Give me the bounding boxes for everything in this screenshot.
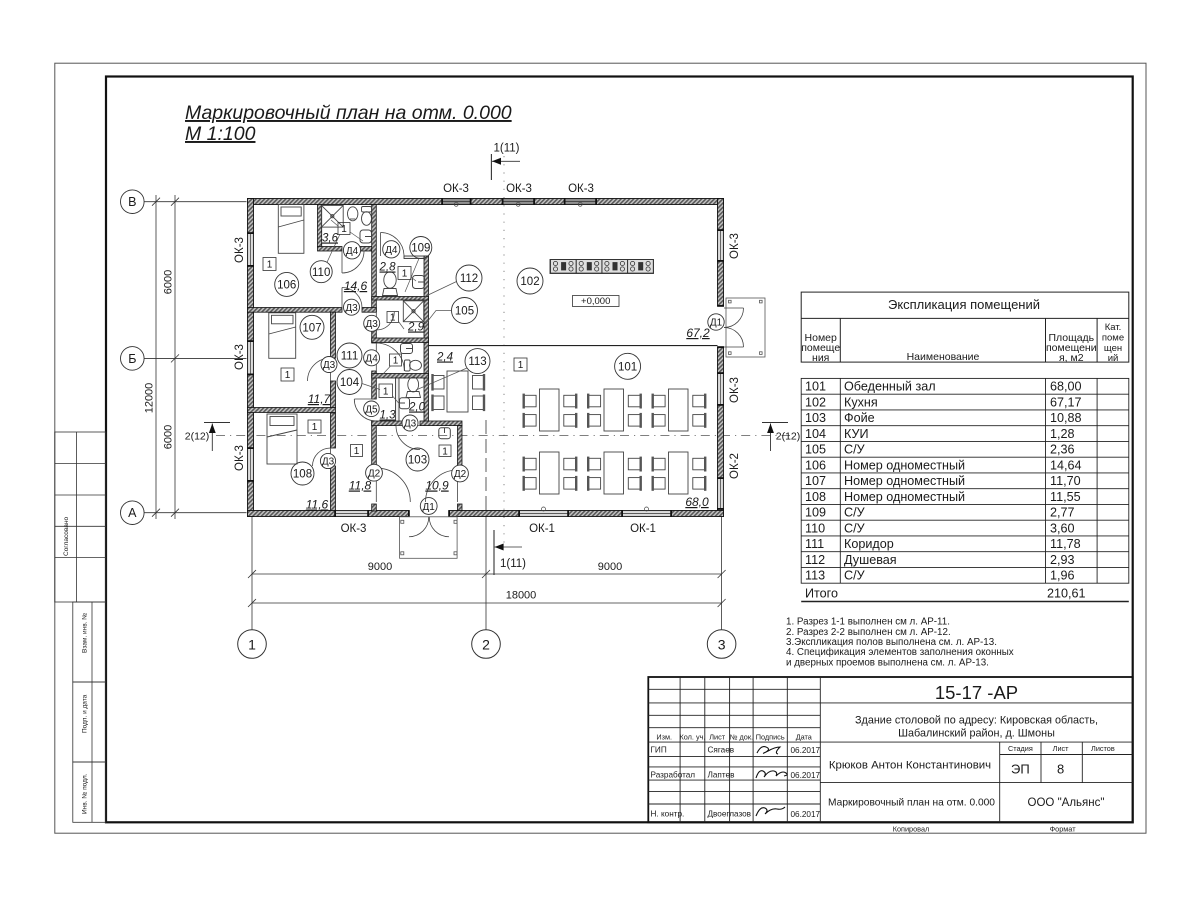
svg-text:+0,000: +0,000 bbox=[581, 296, 610, 307]
svg-text:Д2: Д2 bbox=[454, 469, 467, 480]
svg-text:ОК-3: ОК-3 bbox=[234, 237, 246, 263]
svg-text:10,9: 10,9 bbox=[425, 479, 449, 493]
svg-text:Номер одноместный: Номер одноместный bbox=[844, 458, 965, 472]
svg-text:1: 1 bbox=[383, 386, 389, 397]
svg-text:06.2017: 06.2017 bbox=[791, 810, 821, 819]
svg-text:210,61: 210,61 bbox=[1047, 587, 1086, 601]
svg-text:ООО "Альянс": ООО "Альянс" bbox=[1028, 797, 1105, 809]
svg-text:1: 1 bbox=[285, 370, 291, 381]
svg-text:105: 105 bbox=[455, 306, 474, 318]
svg-text:ОК-3: ОК-3 bbox=[729, 233, 741, 259]
svg-text:Листов: Листов bbox=[1091, 744, 1115, 753]
svg-text:67,17: 67,17 bbox=[1050, 395, 1082, 409]
svg-text:2,0: 2,0 bbox=[408, 402, 426, 414]
svg-text:110: 110 bbox=[805, 521, 825, 535]
svg-text:68,00: 68,00 bbox=[1050, 380, 1082, 394]
svg-text:15-17 -АР: 15-17 -АР bbox=[935, 682, 1018, 703]
svg-text:и дверных проемов выполнена с: и дверных проемов выполнена см. л. АР-13… bbox=[786, 657, 989, 668]
svg-text:103: 103 bbox=[408, 455, 427, 467]
svg-text:11,78: 11,78 bbox=[1050, 537, 1081, 551]
svg-text:Душевая: Душевая bbox=[844, 553, 897, 567]
svg-text:С/У: С/У bbox=[844, 521, 866, 535]
svg-text:2,36: 2,36 bbox=[1050, 443, 1075, 457]
svg-text:Н. контр.: Н. контр. bbox=[651, 810, 685, 819]
svg-text:1: 1 bbox=[390, 312, 396, 323]
svg-text:Подп. и дата: Подп. и дата bbox=[82, 694, 89, 733]
svg-text:1: 1 bbox=[354, 446, 360, 457]
svg-text:Д4: Д4 bbox=[346, 246, 359, 257]
svg-text:1: 1 bbox=[393, 356, 399, 367]
svg-text:1: 1 bbox=[248, 637, 256, 653]
svg-text:06.2017: 06.2017 bbox=[791, 746, 821, 755]
svg-text:104: 104 bbox=[805, 427, 826, 441]
svg-text:106: 106 bbox=[805, 458, 826, 472]
svg-text:109: 109 bbox=[805, 506, 826, 520]
svg-text:1(11): 1(11) bbox=[500, 558, 526, 570]
svg-text:1: 1 bbox=[442, 446, 448, 457]
svg-text:ий: ий bbox=[1108, 353, 1119, 364]
svg-text:2,9: 2,9 bbox=[407, 322, 425, 334]
svg-text:101: 101 bbox=[618, 361, 637, 373]
svg-text:108: 108 bbox=[805, 490, 826, 504]
svg-text:Согласовано: Согласовано bbox=[63, 517, 70, 556]
svg-text:112: 112 bbox=[805, 553, 825, 567]
svg-text:Наименование: Наименование bbox=[907, 351, 980, 363]
svg-text:2,77: 2,77 bbox=[1050, 506, 1075, 520]
svg-text:ЭП: ЭП bbox=[1011, 762, 1030, 777]
svg-text:1(11): 1(11) bbox=[494, 143, 520, 155]
svg-text:1: 1 bbox=[402, 269, 408, 280]
svg-text:В: В bbox=[128, 195, 136, 209]
svg-text:ОК-3: ОК-3 bbox=[729, 377, 741, 403]
svg-text:14,64: 14,64 bbox=[1050, 458, 1082, 472]
svg-text:ОК-3: ОК-3 bbox=[443, 183, 469, 195]
svg-text:ОК-3: ОК-3 bbox=[234, 445, 246, 471]
svg-text:108: 108 bbox=[293, 469, 312, 481]
svg-text:ОК-3: ОК-3 bbox=[341, 523, 367, 535]
svg-text:1: 1 bbox=[312, 422, 318, 433]
svg-text:Д3: Д3 bbox=[323, 360, 336, 371]
svg-text:110: 110 bbox=[312, 267, 330, 279]
svg-text:Инв. № подл.: Инв. № подл. bbox=[82, 773, 89, 814]
svg-text:2,4: 2,4 bbox=[436, 352, 453, 364]
svg-text:ния: ния bbox=[812, 352, 829, 364]
svg-text:Кол. уч.: Кол. уч. bbox=[680, 732, 706, 741]
svg-text:Д3: Д3 bbox=[322, 457, 335, 468]
svg-text:Д4: Д4 bbox=[385, 245, 398, 256]
svg-text:112: 112 bbox=[460, 273, 478, 285]
svg-text:14,6: 14,6 bbox=[344, 279, 368, 293]
svg-text:С/У: С/У bbox=[844, 443, 866, 457]
svg-text:10,88: 10,88 bbox=[1050, 411, 1082, 425]
svg-text:Лист: Лист bbox=[709, 732, 726, 741]
svg-text:Обеденный зал: Обеденный зал bbox=[844, 380, 936, 394]
svg-text:104: 104 bbox=[340, 377, 360, 389]
svg-text:11,7: 11,7 bbox=[308, 392, 332, 406]
svg-text:ОК-1: ОК-1 bbox=[630, 523, 656, 535]
svg-text:Номер одноместный: Номер одноместный bbox=[844, 474, 965, 488]
svg-text:Маркировочный план на отм. 0.: Маркировочный план на отм. 0.000 bbox=[185, 102, 512, 124]
svg-text:ОК-3: ОК-3 bbox=[506, 183, 532, 195]
svg-text:Д3: Д3 bbox=[366, 319, 379, 330]
svg-text:поме: поме bbox=[1102, 333, 1124, 344]
svg-text:2,8: 2,8 bbox=[379, 262, 397, 274]
svg-text:Крюков Антон Константинович: Крюков Антон Константинович bbox=[829, 760, 991, 772]
svg-text:11,70: 11,70 bbox=[1050, 474, 1081, 488]
svg-text:9000: 9000 bbox=[368, 561, 392, 573]
svg-text:Д3: Д3 bbox=[404, 419, 417, 430]
svg-text:Изм.: Изм. bbox=[656, 732, 672, 741]
svg-text:12000: 12000 bbox=[144, 383, 156, 414]
svg-text:113: 113 bbox=[805, 569, 825, 583]
svg-text:Фойе: Фойе bbox=[844, 411, 875, 425]
svg-text:ОК-3: ОК-3 bbox=[568, 183, 594, 195]
svg-text:1,96: 1,96 bbox=[1050, 569, 1075, 583]
svg-text:3,60: 3,60 bbox=[1050, 521, 1075, 535]
svg-text:111: 111 bbox=[341, 351, 358, 363]
svg-text:Формат: Формат bbox=[1050, 825, 1077, 834]
svg-text:Д3: Д3 bbox=[345, 303, 358, 314]
svg-text:101: 101 bbox=[805, 380, 826, 394]
svg-text:я, м2: я, м2 bbox=[1059, 352, 1084, 364]
svg-text:Шабалинский район, д. Шмоны: Шабалинский район, д. Шмоны bbox=[898, 728, 1055, 740]
svg-text:Копировал: Копировал bbox=[893, 825, 930, 834]
svg-text:1: 1 bbox=[341, 224, 347, 235]
svg-text:С/У: С/У bbox=[844, 506, 866, 520]
svg-text:Лаптев: Лаптев bbox=[708, 771, 735, 780]
svg-text:6000: 6000 bbox=[163, 425, 175, 449]
svg-text:ОК-3: ОК-3 bbox=[234, 344, 246, 370]
svg-text:Подпись: Подпись bbox=[756, 732, 785, 741]
svg-text:Д5: Д5 bbox=[365, 404, 378, 415]
svg-text:6000: 6000 bbox=[163, 270, 175, 294]
svg-text:18000: 18000 bbox=[506, 590, 537, 602]
svg-text:Здание столовой по адресу: Кир: Здание столовой по адресу: Кировская обл… bbox=[855, 714, 1098, 726]
svg-text:107: 107 bbox=[805, 474, 826, 488]
svg-text:67,2: 67,2 bbox=[686, 326, 710, 340]
svg-text:Б: Б bbox=[128, 352, 136, 366]
svg-text:Номер одноместный: Номер одноместный bbox=[844, 490, 965, 504]
svg-text:102: 102 bbox=[520, 276, 539, 288]
svg-text:06.2017: 06.2017 bbox=[791, 771, 821, 780]
svg-text:Взам. инв. №: Взам. инв. № bbox=[82, 613, 89, 653]
svg-text:Кат.: Кат. bbox=[1105, 322, 1122, 333]
svg-text:113: 113 bbox=[468, 356, 486, 368]
svg-text:Кухня: Кухня bbox=[844, 395, 878, 409]
svg-text:106: 106 bbox=[277, 280, 296, 292]
svg-text:Д4: Д4 bbox=[365, 353, 378, 364]
svg-text:2: 2 bbox=[482, 637, 490, 653]
svg-text:Д1: Д1 bbox=[710, 318, 723, 329]
svg-text:2(12): 2(12) bbox=[776, 431, 801, 443]
svg-text:Маркировочный план на отм. 0.: Маркировочный план на отм. 0.000 bbox=[828, 798, 995, 809]
svg-text:1,28: 1,28 bbox=[1050, 427, 1075, 441]
svg-text:А: А bbox=[128, 506, 137, 520]
svg-text:Д1: Д1 bbox=[423, 502, 436, 513]
svg-text:8: 8 bbox=[1057, 762, 1064, 777]
svg-text:№ док.: № док. bbox=[730, 732, 753, 741]
svg-text:111: 111 bbox=[805, 537, 824, 551]
svg-text:9000: 9000 bbox=[598, 561, 622, 573]
svg-text:2(12): 2(12) bbox=[185, 431, 210, 443]
svg-text:11,55: 11,55 bbox=[1050, 490, 1081, 504]
svg-text:102: 102 bbox=[805, 395, 826, 409]
svg-text:Итого: Итого bbox=[805, 587, 838, 601]
svg-text:ОК-1: ОК-1 bbox=[529, 523, 555, 535]
svg-text:109: 109 bbox=[411, 243, 430, 255]
svg-text:Сягаев: Сягаев bbox=[708, 746, 735, 755]
svg-text:Разработал: Разработал bbox=[651, 771, 696, 780]
svg-text:Лист: Лист bbox=[1053, 744, 1070, 753]
svg-text:1: 1 bbox=[518, 360, 524, 371]
svg-text:107: 107 bbox=[302, 322, 321, 334]
svg-text:11,8: 11,8 bbox=[349, 479, 372, 493]
svg-text:КУИ: КУИ bbox=[844, 427, 869, 441]
svg-text:68,0: 68,0 bbox=[685, 495, 709, 509]
svg-text:1: 1 bbox=[267, 260, 273, 271]
svg-text:2,93: 2,93 bbox=[1050, 553, 1075, 567]
svg-text:1,3: 1,3 bbox=[380, 410, 397, 422]
svg-text:ОК-2: ОК-2 bbox=[729, 453, 741, 479]
svg-text:М 1:100: М 1:100 bbox=[185, 123, 256, 145]
svg-text:Двоеглазов: Двоеглазов bbox=[708, 810, 752, 819]
svg-text:Дата: Дата bbox=[796, 732, 813, 741]
svg-text:Экспликация помещений: Экспликация помещений bbox=[888, 297, 1040, 312]
svg-text:С/У: С/У bbox=[844, 569, 866, 583]
svg-text:Коридор: Коридор bbox=[844, 537, 894, 551]
svg-text:3,6: 3,6 bbox=[322, 233, 339, 245]
svg-text:ГИП: ГИП bbox=[651, 746, 667, 755]
svg-text:105: 105 bbox=[805, 443, 826, 457]
svg-text:3: 3 bbox=[718, 637, 726, 653]
svg-text:Стадия: Стадия bbox=[1008, 744, 1033, 753]
svg-text:103: 103 bbox=[805, 411, 826, 425]
svg-text:11,6: 11,6 bbox=[306, 498, 329, 512]
